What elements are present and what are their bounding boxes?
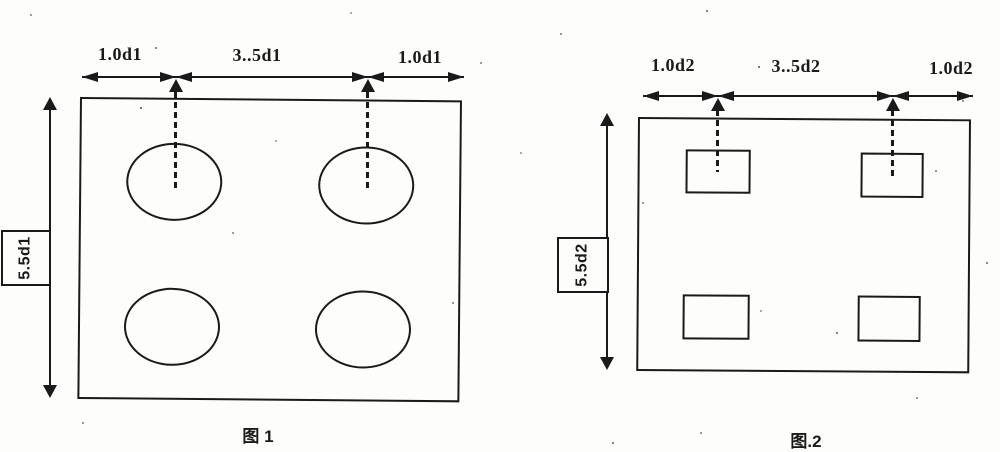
patent-figures-page: 1.0d1 3..5d1 1.0d1 5.5d1 图 1	[0, 0, 1000, 452]
fig2-hole-rect-top-right	[860, 153, 923, 198]
fig2-hole-rect-top-left	[685, 149, 750, 193]
arrowhead-left-icon	[643, 91, 659, 101]
fig2-hole-rect-bottom-right	[857, 296, 920, 342]
fig2-side-dimension-label: 5.5d2	[574, 243, 592, 286]
fig2-dim-label-right: 1.0d2	[929, 58, 973, 79]
fig2-dim-label-middle: 3..5d2	[771, 56, 820, 77]
fig2-dim-label-left: 1.0d2	[651, 55, 695, 76]
figure2-caption: 图.2	[790, 427, 821, 452]
arrowhead-right-icon	[957, 91, 973, 101]
fig2-horizontal-dimension-line	[643, 95, 973, 97]
fig2-hole-rect-bottom-left	[682, 294, 749, 339]
arrowhead-down-icon	[600, 357, 614, 370]
fig2-plate-outline	[636, 117, 971, 373]
figure-2: 1.0d2 3..5d2 1.0d2 5.5d2 图.2	[0, 0, 1000, 452]
fig2-side-dimension-box: 5.5d2	[557, 237, 609, 293]
